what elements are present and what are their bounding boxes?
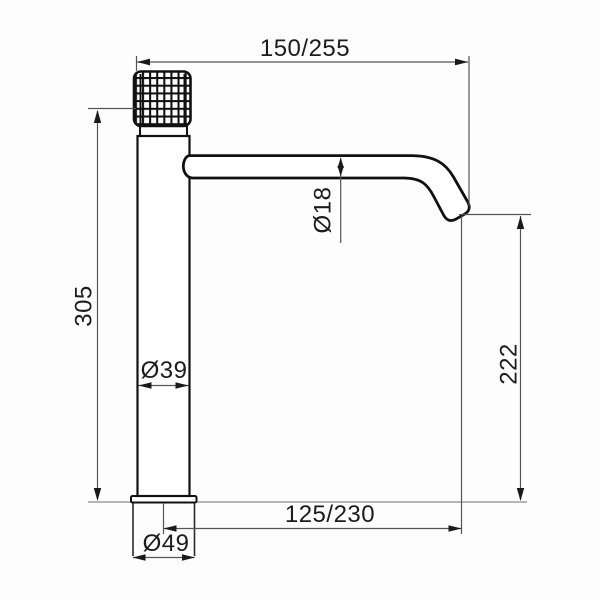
technical-drawing-canvas: 150/255 305 Ø18 222 125/230 Ø39 [0, 0, 600, 600]
dimension-base-diameter: Ø49 [133, 530, 196, 561]
dimension-label-150-255: 150/255 [260, 35, 350, 62]
arrowhead-right [449, 525, 462, 532]
body-column [138, 136, 190, 496]
arrowhead-down [517, 488, 524, 501]
arrowhead-up [94, 110, 101, 123]
knurled-handle [134, 72, 191, 127]
arrowhead-up [517, 216, 524, 229]
dimension-label-d39: Ø39 [141, 357, 188, 384]
arrowhead-left [137, 59, 150, 66]
arrowhead-down [94, 488, 101, 501]
dimension-outlet-height: 222 [459, 215, 531, 502]
dimension-label-d49: Ø49 [143, 530, 190, 557]
dimension-label-125-230: 125/230 [285, 501, 375, 528]
dimension-outlet-reach-bottom: 125/230 [164, 216, 462, 534]
dimension-label-222: 222 [496, 343, 523, 385]
arrowhead-right [455, 59, 468, 66]
dimension-label-d18: Ø18 [310, 187, 337, 234]
dimension-body-height: 305 [71, 109, 137, 502]
faucet-dimension-drawing: 150/255 305 Ø18 222 125/230 Ø39 [0, 0, 600, 600]
dimension-label-305: 305 [71, 285, 98, 327]
